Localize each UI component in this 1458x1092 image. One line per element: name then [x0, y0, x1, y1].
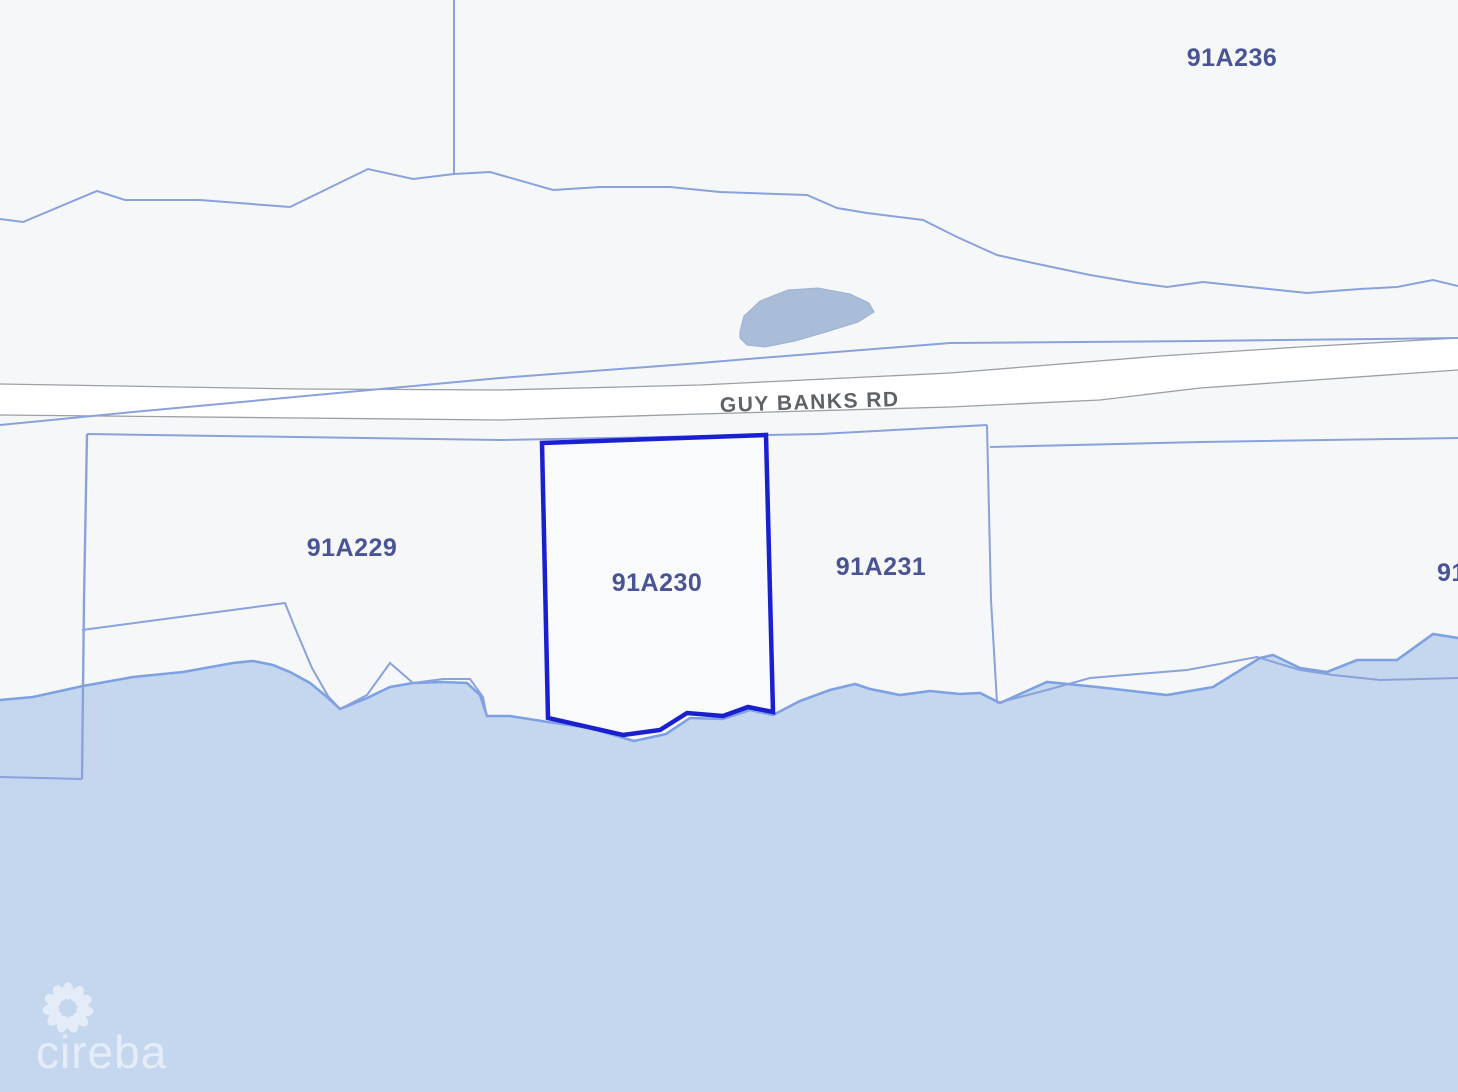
parcel-label-91A229: 91A229	[307, 534, 398, 562]
map-viewport[interactable]: 91A236 91A229 91A230 91A231 91 GUY BANKS…	[0, 0, 1458, 1092]
cireba-brand-text: cireba	[36, 1026, 167, 1078]
parcel-map[interactable]: 91A236 91A229 91A230 91A231 91 GUY BANKS…	[0, 0, 1458, 1092]
parcel-label-91A230: 91A230	[612, 569, 703, 597]
parcel-label-91A236: 91A236	[1187, 44, 1278, 72]
parcel-label-edge-clipped: 91	[1437, 559, 1458, 587]
parcel-label-91A231: 91A231	[836, 553, 927, 581]
